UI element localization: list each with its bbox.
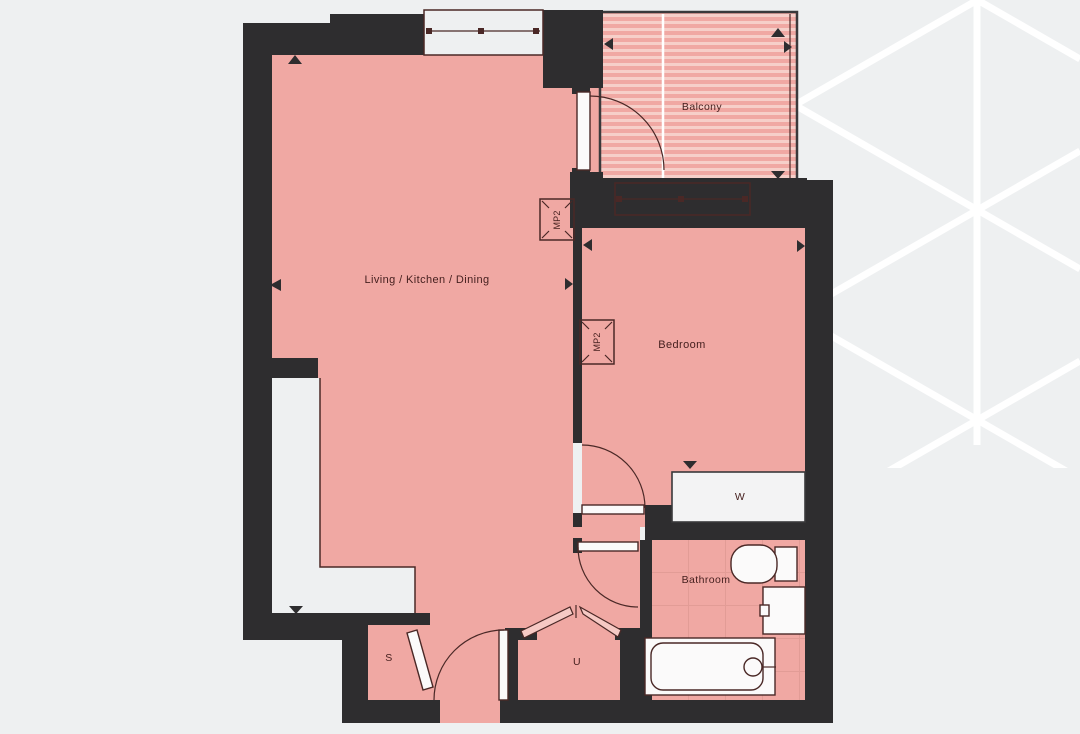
balcony-label: Balcony [682,101,722,113]
right-wall [805,180,833,723]
toilet [731,545,797,583]
bathtub [645,638,776,695]
bathroom-label: Bathroom [682,574,731,586]
storage-label: S [385,652,392,664]
bottom-wall [360,700,440,723]
bedroom-label: Bedroom [658,339,705,351]
balcony-area [600,12,797,180]
sink [760,587,805,634]
mp2-label-bedroom: MP2 [592,332,602,351]
wardrobe-label: W [735,491,745,503]
bedroom-area [582,228,805,513]
floor-plan [0,0,1080,734]
living-area [272,55,573,378]
living-window [424,10,543,55]
living-room-label: Living / Kitchen / Dining [365,274,490,286]
utility-label: U [573,656,581,668]
left-wall [243,23,272,640]
mp2-label-living: MP2 [552,210,562,229]
